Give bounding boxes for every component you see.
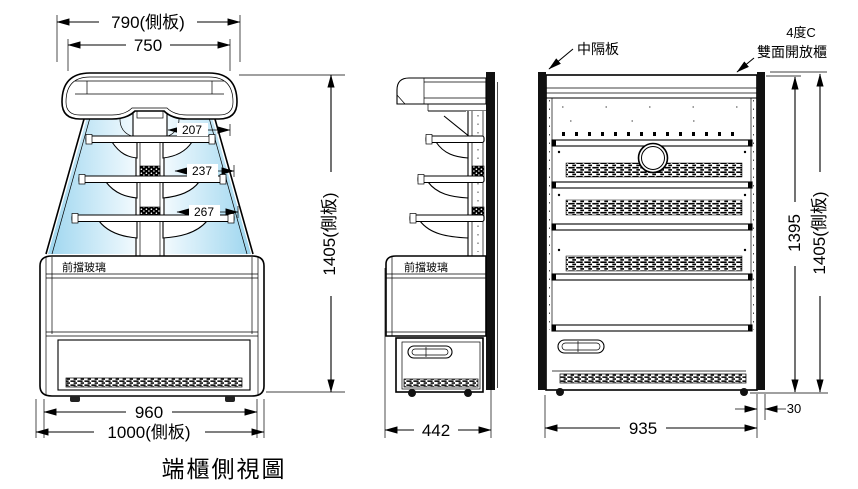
middle-partition-bar (486, 72, 495, 390)
middle-partition-bar-left (538, 72, 546, 390)
temperature-label-text: 4度C (786, 25, 816, 40)
foot (556, 388, 564, 396)
front-glass-label: 前擋玻璃 (62, 260, 106, 274)
label-temperature: 4度C (786, 25, 816, 40)
dim-960-text: 960 (135, 403, 163, 422)
dim-207: 207 (168, 123, 230, 137)
base-grille (560, 374, 746, 383)
dim-237-text: 237 (192, 164, 212, 178)
dim-935: 935 (545, 394, 757, 438)
foot (225, 396, 235, 402)
dim-1405-right-text: 1405(側板) (810, 191, 829, 274)
foot (464, 389, 472, 397)
fan-opening (639, 144, 668, 173)
middle-view: 前擋玻璃 442 (385, 72, 498, 440)
front-glass-label: 前擋玻璃 (404, 260, 448, 274)
dim-750: 750 (68, 36, 230, 71)
foot (70, 396, 80, 402)
cabinet-type-label-text: 雙面開放櫃 (757, 44, 827, 60)
dim-790-text: 790(側板) (111, 13, 185, 32)
dim-207-text: 207 (182, 123, 202, 137)
foot (740, 388, 748, 396)
dim-1000-text: 1000(側板) (107, 423, 190, 442)
dim-935-text: 935 (629, 419, 657, 438)
dim-750-text: 750 (134, 36, 162, 55)
drawing-caption: 端櫃側視圖 (162, 456, 287, 482)
dim-442-text: 442 (422, 421, 450, 440)
cabinet-drawing: 前擋玻璃 790(側板) 750 207 237 (0, 0, 858, 489)
dim-30-text: 30 (787, 401, 801, 416)
left-view: 前擋玻璃 790(側板) 750 207 237 (36, 13, 345, 442)
partition-label-text: 中隔板 (577, 41, 619, 57)
base-grille (404, 379, 478, 387)
right-view: 中隔板 4度C 雙面開放櫃 30 935 (538, 25, 829, 438)
foot (408, 389, 416, 397)
base-grille (66, 378, 242, 387)
label-partition: 中隔板 (549, 41, 619, 69)
label-cabinet-type: 雙面開放櫃 (737, 44, 827, 72)
dim-267-text: 267 (194, 205, 214, 219)
left-view-base-cabinet: 前擋玻璃 (40, 256, 264, 402)
coil-block (140, 166, 160, 177)
dim-1405-left-text: 1405(側板) (320, 192, 339, 275)
middle-partition-bar-right (757, 72, 765, 390)
dim-1395-text: 1395 (785, 214, 804, 252)
middle-view-canopy (397, 78, 486, 111)
coil-block (472, 166, 484, 177)
technical-drawing-page: 前擋玻璃 790(側板) 750 207 237 (0, 0, 858, 489)
dim-30: 30 (735, 394, 801, 420)
middle-view-base: 前擋玻璃 (386, 256, 486, 397)
